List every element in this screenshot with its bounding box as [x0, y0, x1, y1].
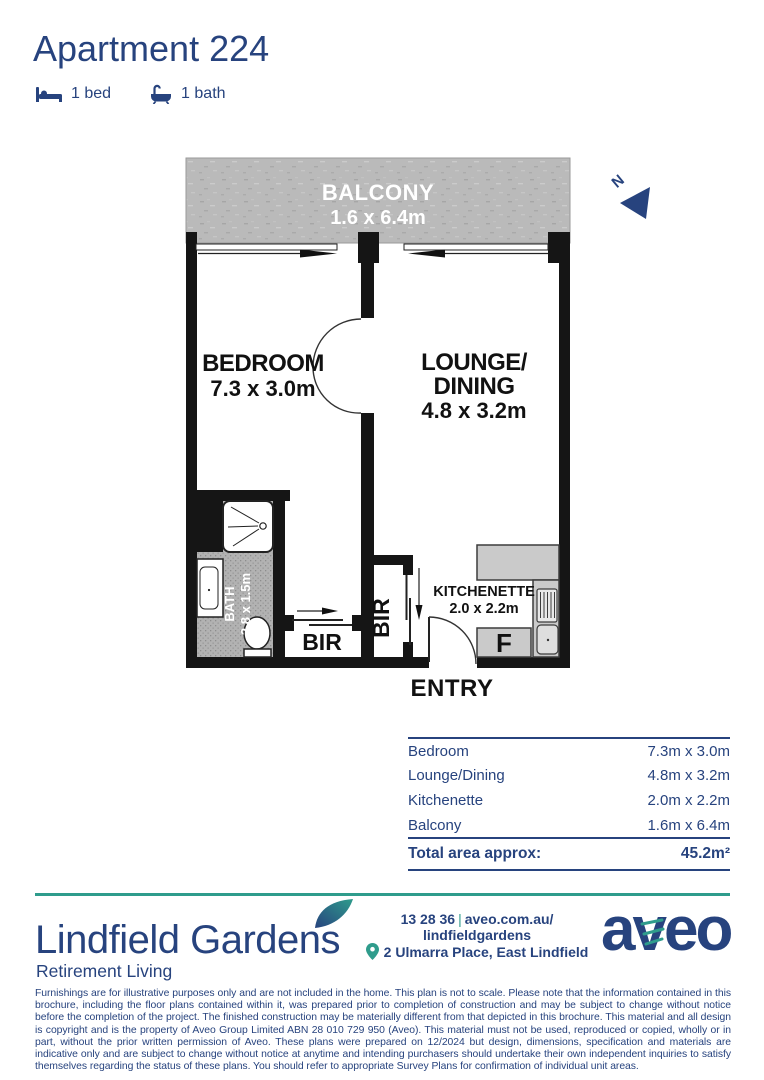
community-tagline: Retirement Living	[36, 961, 172, 982]
lounge-label-1: LOUNGE/	[421, 349, 528, 376]
row-value: 2.0m x 2.2m	[647, 792, 730, 809]
bathroom-area: BATH 2.8 x 1.5m	[197, 501, 273, 657]
brand-logo: aveo	[601, 897, 741, 967]
table-row: Lounge/Dining 4.8m x 3.2m	[408, 764, 730, 789]
bath-dims: 2.8 x 1.5m	[238, 573, 253, 635]
bedroom-label: BEDROOM	[202, 350, 324, 377]
table-row: Kitchenette 2.0m x 2.2m	[408, 788, 730, 813]
room-labels: BEDROOM 7.3 x 3.0m LOUNGE/ DINING 4.8 x …	[202, 349, 528, 423]
kitchenette-dims: 2.0 x 2.2m	[449, 601, 518, 617]
total-label: Total area approx:	[408, 845, 541, 863]
lounge-label-2: DINING	[434, 373, 515, 400]
kitchenette-area: F KITCHENETTE 2.0 x 2.2m	[433, 545, 559, 658]
entry-label: ENTRY	[411, 675, 494, 702]
bath-label: BATH	[222, 586, 237, 621]
row-value: 7.3m x 3.0m	[647, 743, 730, 760]
north-arrow: N	[608, 172, 650, 219]
balcony-label: BALCONY	[322, 180, 434, 205]
contact-line-1: 13 28 36|aveo.com.au/	[352, 911, 602, 927]
bedroom-dims: 7.3 x 3.0m	[210, 376, 315, 401]
north-label: N	[608, 172, 627, 192]
fridge-label: F	[496, 628, 512, 658]
community-name: Lindfield Gardens	[35, 920, 340, 960]
row-value: 4.8m x 3.2m	[647, 767, 730, 784]
balcony-area: BALCONY 1.6 x 6.4m	[186, 158, 570, 243]
bir-left: BIR	[292, 608, 352, 656]
brochure-page: Apartment 224 1 bed 1 bath	[0, 0, 764, 1080]
row-label: Bedroom	[408, 743, 469, 760]
separator: |	[455, 911, 465, 927]
balcony-dims: 1.6 x 6.4m	[330, 207, 426, 229]
bir-left-label: BIR	[302, 629, 342, 655]
lounge-dims: 4.8 x 3.2m	[421, 398, 526, 423]
contact-block: 13 28 36|aveo.com.au/ lindfieldgardens 2…	[352, 911, 602, 960]
row-label: Kitchenette	[408, 792, 483, 809]
kitchenette-label: KITCHENETTE	[433, 584, 535, 600]
bir-middle: BIR	[368, 568, 423, 645]
location-pin-icon	[366, 943, 379, 960]
website-url[interactable]: aveo.com.au/	[465, 911, 554, 927]
leaf-icon	[313, 897, 355, 931]
phone-number: 13 28 36	[401, 911, 456, 927]
table-total-row: Total area approx: 45.2m²	[408, 837, 730, 871]
area-table: Bedroom 7.3m x 3.0m Lounge/Dining 4.8m x…	[408, 737, 730, 871]
contact-line-3: 2 Ulmarra Place, East Lindfield	[352, 943, 602, 960]
row-value: 1.6m x 6.4m	[647, 817, 730, 834]
row-label: Lounge/Dining	[408, 767, 505, 784]
north-arrow-icon	[620, 187, 650, 219]
disclaimer-text: Furnishings are for illustrative purpose…	[35, 988, 731, 1073]
balcony-slider-left	[196, 244, 337, 258]
table-row: Balcony 1.6m x 6.4m	[408, 813, 730, 838]
balcony-slider-right	[404, 244, 548, 258]
table-row: Bedroom 7.3m x 3.0m	[408, 739, 730, 764]
row-label: Balcony	[408, 817, 461, 834]
address: 2 Ulmarra Place, East Lindfield	[384, 944, 589, 960]
brand-leaf-v-icon	[634, 916, 672, 958]
bir-middle-label: BIR	[368, 598, 394, 638]
total-value: 45.2m²	[681, 845, 730, 863]
contact-line-2[interactable]: lindfieldgardens	[352, 927, 602, 943]
